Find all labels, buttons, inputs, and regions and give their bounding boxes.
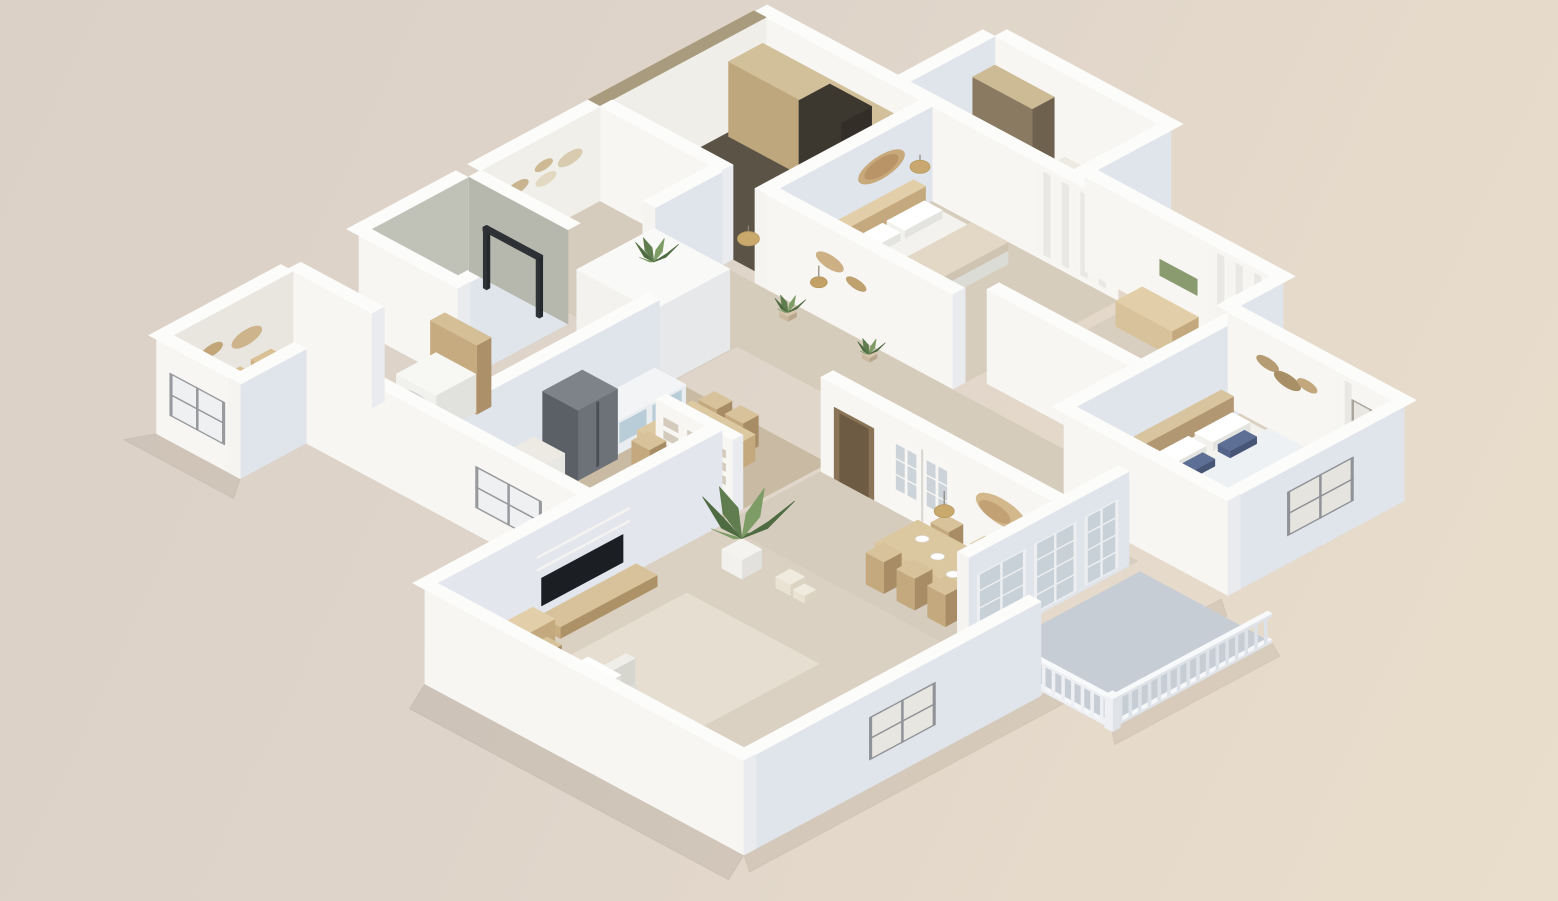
isometric-scene [0, 0, 1558, 901]
curtains-bedroom-a-fold [1034, 167, 1041, 253]
balcony-railing-south-baluster [1100, 697, 1103, 722]
balcony-railing-east-baluster [1187, 661, 1190, 686]
pendant-lamp-bedroom-a-shade [910, 160, 930, 173]
balcony-railing-east-baluster [1139, 687, 1142, 712]
balcony-railing-east-baluster [1129, 692, 1132, 717]
kitchen-cubby-partition-cap [733, 435, 743, 514]
shower-frame-post-2-front [536, 255, 539, 318]
balcony-railing-east-baluster [1177, 666, 1180, 691]
hallway-pendant-2-shade [810, 277, 827, 288]
curtains-bedroom-a-fold [1044, 172, 1051, 258]
balcony-railing-east-baluster [1226, 640, 1229, 665]
floorplan-stage [0, 0, 1558, 901]
balcony-railing-east-baluster [1235, 635, 1238, 660]
wall-master-front-cap [1228, 495, 1240, 596]
balcony-railing-south-baluster [1081, 686, 1084, 711]
fridge-door-split [597, 401, 599, 467]
shower-frame-post-1-front [483, 227, 486, 290]
balcony-railing-south-baluster [1062, 676, 1065, 701]
balcony-railing-south-baluster [1052, 671, 1055, 696]
balcony-railing-east-baluster [1206, 650, 1209, 675]
dining-plate-2 [931, 553, 945, 560]
dining-plate-1 [915, 535, 929, 542]
wall-left-room-north-cap [372, 307, 384, 408]
balcony-railing-east-baluster [1216, 645, 1219, 670]
balcony-railing-east-baluster [1264, 619, 1267, 644]
french-door-living-split [922, 450, 923, 527]
shower-frame-post-1-side [487, 227, 490, 290]
wall-left-step-east-cap [228, 378, 240, 479]
balcony-railing-east-baluster [1245, 629, 1248, 654]
balcony-railing-south-baluster [1042, 666, 1045, 691]
dining-pendant-shade [934, 505, 954, 518]
shower-frame-post-2-side [539, 255, 542, 318]
curtains-bedroom-a-fold [1071, 187, 1078, 273]
wall-bedroom-a-south-cap [953, 288, 965, 389]
balcony-railing-post-front [1105, 695, 1113, 732]
balcony-railing-east-baluster [1255, 624, 1258, 649]
curtains-bedroom-a-fold [1062, 182, 1069, 268]
laundry-wood-cabinet-side [477, 338, 491, 415]
balcony-railing-east-baluster [1168, 671, 1171, 696]
balcony-railing-east-baluster [1197, 655, 1200, 680]
balcony-railing-post-side [1113, 695, 1121, 732]
wall-closet-south-cap [721, 165, 733, 266]
balcony-railing-south-baluster [1071, 681, 1074, 706]
wall-living-front-cap [744, 754, 756, 855]
balcony-railing-east-baluster [1148, 681, 1151, 706]
hallway-pendant-1-shade [737, 232, 759, 246]
balcony-railing-south-baluster [1091, 691, 1094, 716]
balcony-railing-east-baluster [1158, 676, 1161, 701]
curtains-bedroom-a-fold [1053, 177, 1060, 263]
